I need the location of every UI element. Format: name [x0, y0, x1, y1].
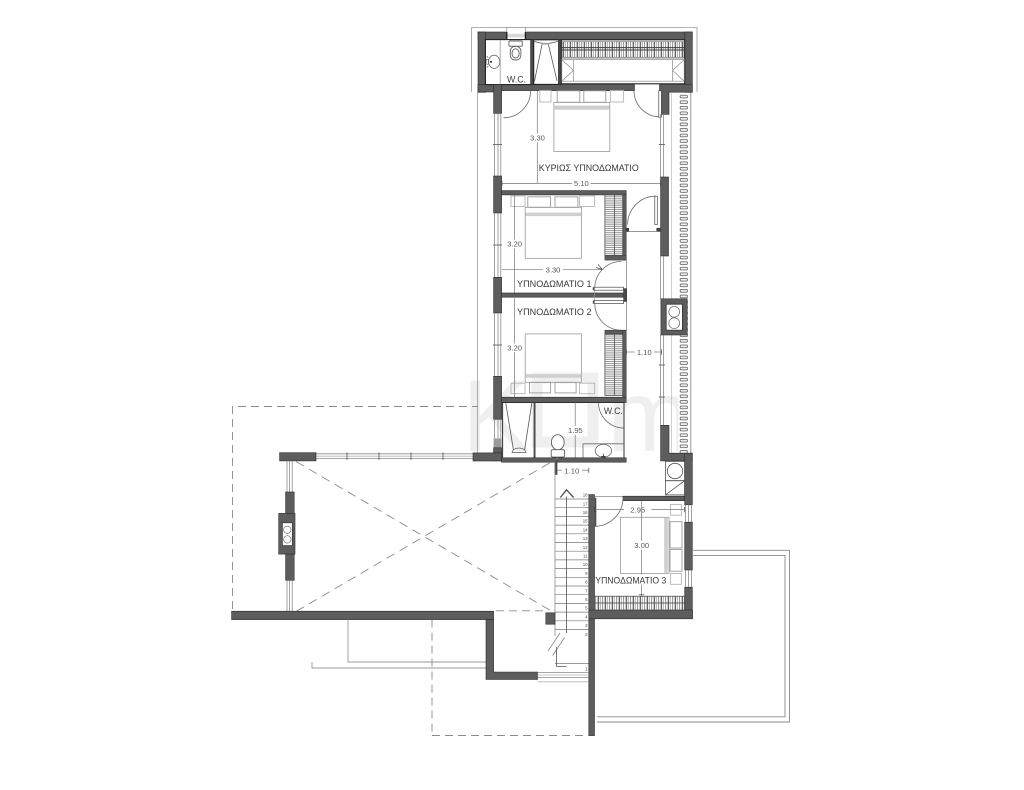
svg-text:12: 12 [583, 545, 588, 550]
svg-text:W.C.: W.C. [604, 406, 623, 416]
svg-text:18: 18 [583, 493, 588, 498]
svg-text:3.30: 3.30 [530, 134, 545, 143]
svg-text:2.95: 2.95 [630, 505, 645, 514]
svg-text:17: 17 [583, 501, 588, 506]
svg-text:1.10: 1.10 [637, 348, 652, 357]
svg-text:ΥΠΝΟΔΩΜΑΤΙΟ 3: ΥΠΝΟΔΩΜΑΤΙΟ 3 [595, 576, 666, 586]
svg-text:3.30: 3.30 [546, 266, 561, 275]
svg-text:13: 13 [583, 536, 588, 541]
svg-text:11: 11 [583, 554, 588, 559]
svg-text:ΥΠΝΟΔΩΜΑΤΙΟ 1: ΥΠΝΟΔΩΜΑΤΙΟ 1 [517, 279, 592, 289]
svg-text:ΥΠΝΟΔΩΜΑΤΙΟ 2: ΥΠΝΟΔΩΜΑΤΙΟ 2 [517, 307, 592, 317]
svg-text:ΚΥΡΙΩΣ ΥΠΝΟΔΩΜΑΤΙΟ: ΚΥΡΙΩΣ ΥΠΝΟΔΩΜΑΤΙΟ [539, 163, 639, 173]
svg-text:W.C.: W.C. [507, 74, 526, 84]
svg-text:3.00: 3.00 [634, 541, 649, 550]
svg-text:14: 14 [583, 527, 588, 532]
svg-text:3.20: 3.20 [507, 240, 522, 249]
svg-text:10: 10 [583, 562, 588, 567]
svg-text:1.10: 1.10 [564, 466, 579, 475]
svg-text:15: 15 [583, 519, 588, 524]
svg-text:1.95: 1.95 [568, 426, 583, 435]
svg-text:16: 16 [583, 510, 588, 515]
svg-text:3.20: 3.20 [507, 343, 522, 352]
svg-text:5.10: 5.10 [574, 179, 589, 188]
